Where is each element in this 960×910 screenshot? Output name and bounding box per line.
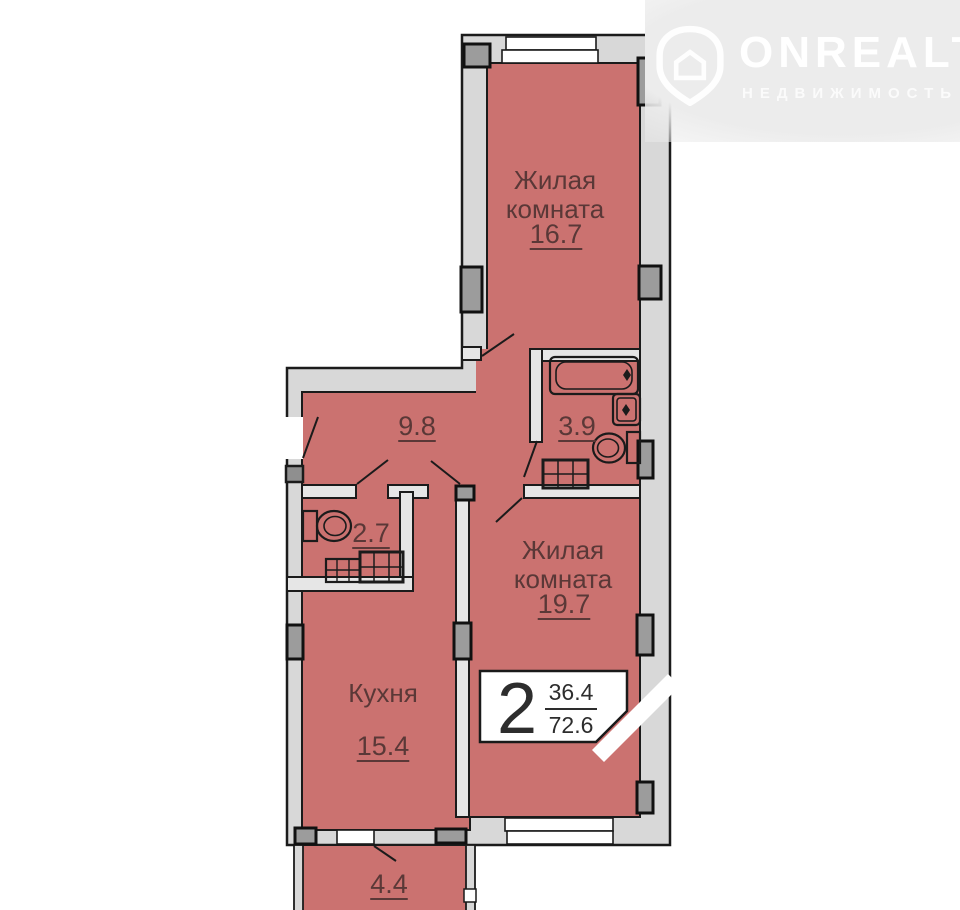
- wall-hall-a: [302, 485, 356, 498]
- watermark-brand: ONREALT: [739, 28, 960, 78]
- sink-icon: [613, 394, 640, 425]
- badge-living-area: 36.4: [545, 679, 597, 710]
- floor-plan-page: Жилая комната 16.7 9.8 3.9 2.7 Жилая ком…: [0, 0, 960, 910]
- living2-area: 19.7: [524, 589, 604, 619]
- window-top-inner: [502, 50, 598, 63]
- window-bottom-inner: [507, 831, 613, 844]
- wall-wc-bottom: [287, 577, 413, 591]
- window-top-outer: [506, 37, 596, 50]
- window-bottom-outer: [505, 818, 613, 831]
- wall-bath-top: [530, 349, 640, 361]
- wall-stub-living1: [462, 347, 481, 360]
- living2-name: Жилая комната: [477, 536, 649, 594]
- kitchen-area: 15.4: [343, 731, 423, 761]
- onrealt-house-icon: [655, 24, 725, 106]
- watermark-subtitle: НЕДВИЖИМОСТЬ: [742, 85, 960, 102]
- balcony-area: 4.4: [349, 869, 429, 899]
- badge-areas: 36.4 72.6: [545, 679, 597, 739]
- watermark-text: ONREALT НЕДВИЖИМОСТЬ: [739, 28, 960, 102]
- living1-area: 16.7: [516, 219, 596, 249]
- living1-name: Жилая комната: [470, 166, 640, 224]
- balcony-notch: [464, 889, 476, 902]
- bathroom-area: 3.9: [537, 411, 617, 441]
- kitchen-name: Кухня: [303, 679, 463, 708]
- wc-area: 2.7: [331, 518, 411, 548]
- badge-rooms-count: 2: [497, 668, 537, 750]
- watermark: ONREALT НЕДВИЖИМОСТЬ: [655, 24, 960, 106]
- hallway-area: 9.8: [377, 411, 457, 441]
- badge-total-area: 72.6: [545, 710, 597, 739]
- window-kitchen: [337, 830, 374, 844]
